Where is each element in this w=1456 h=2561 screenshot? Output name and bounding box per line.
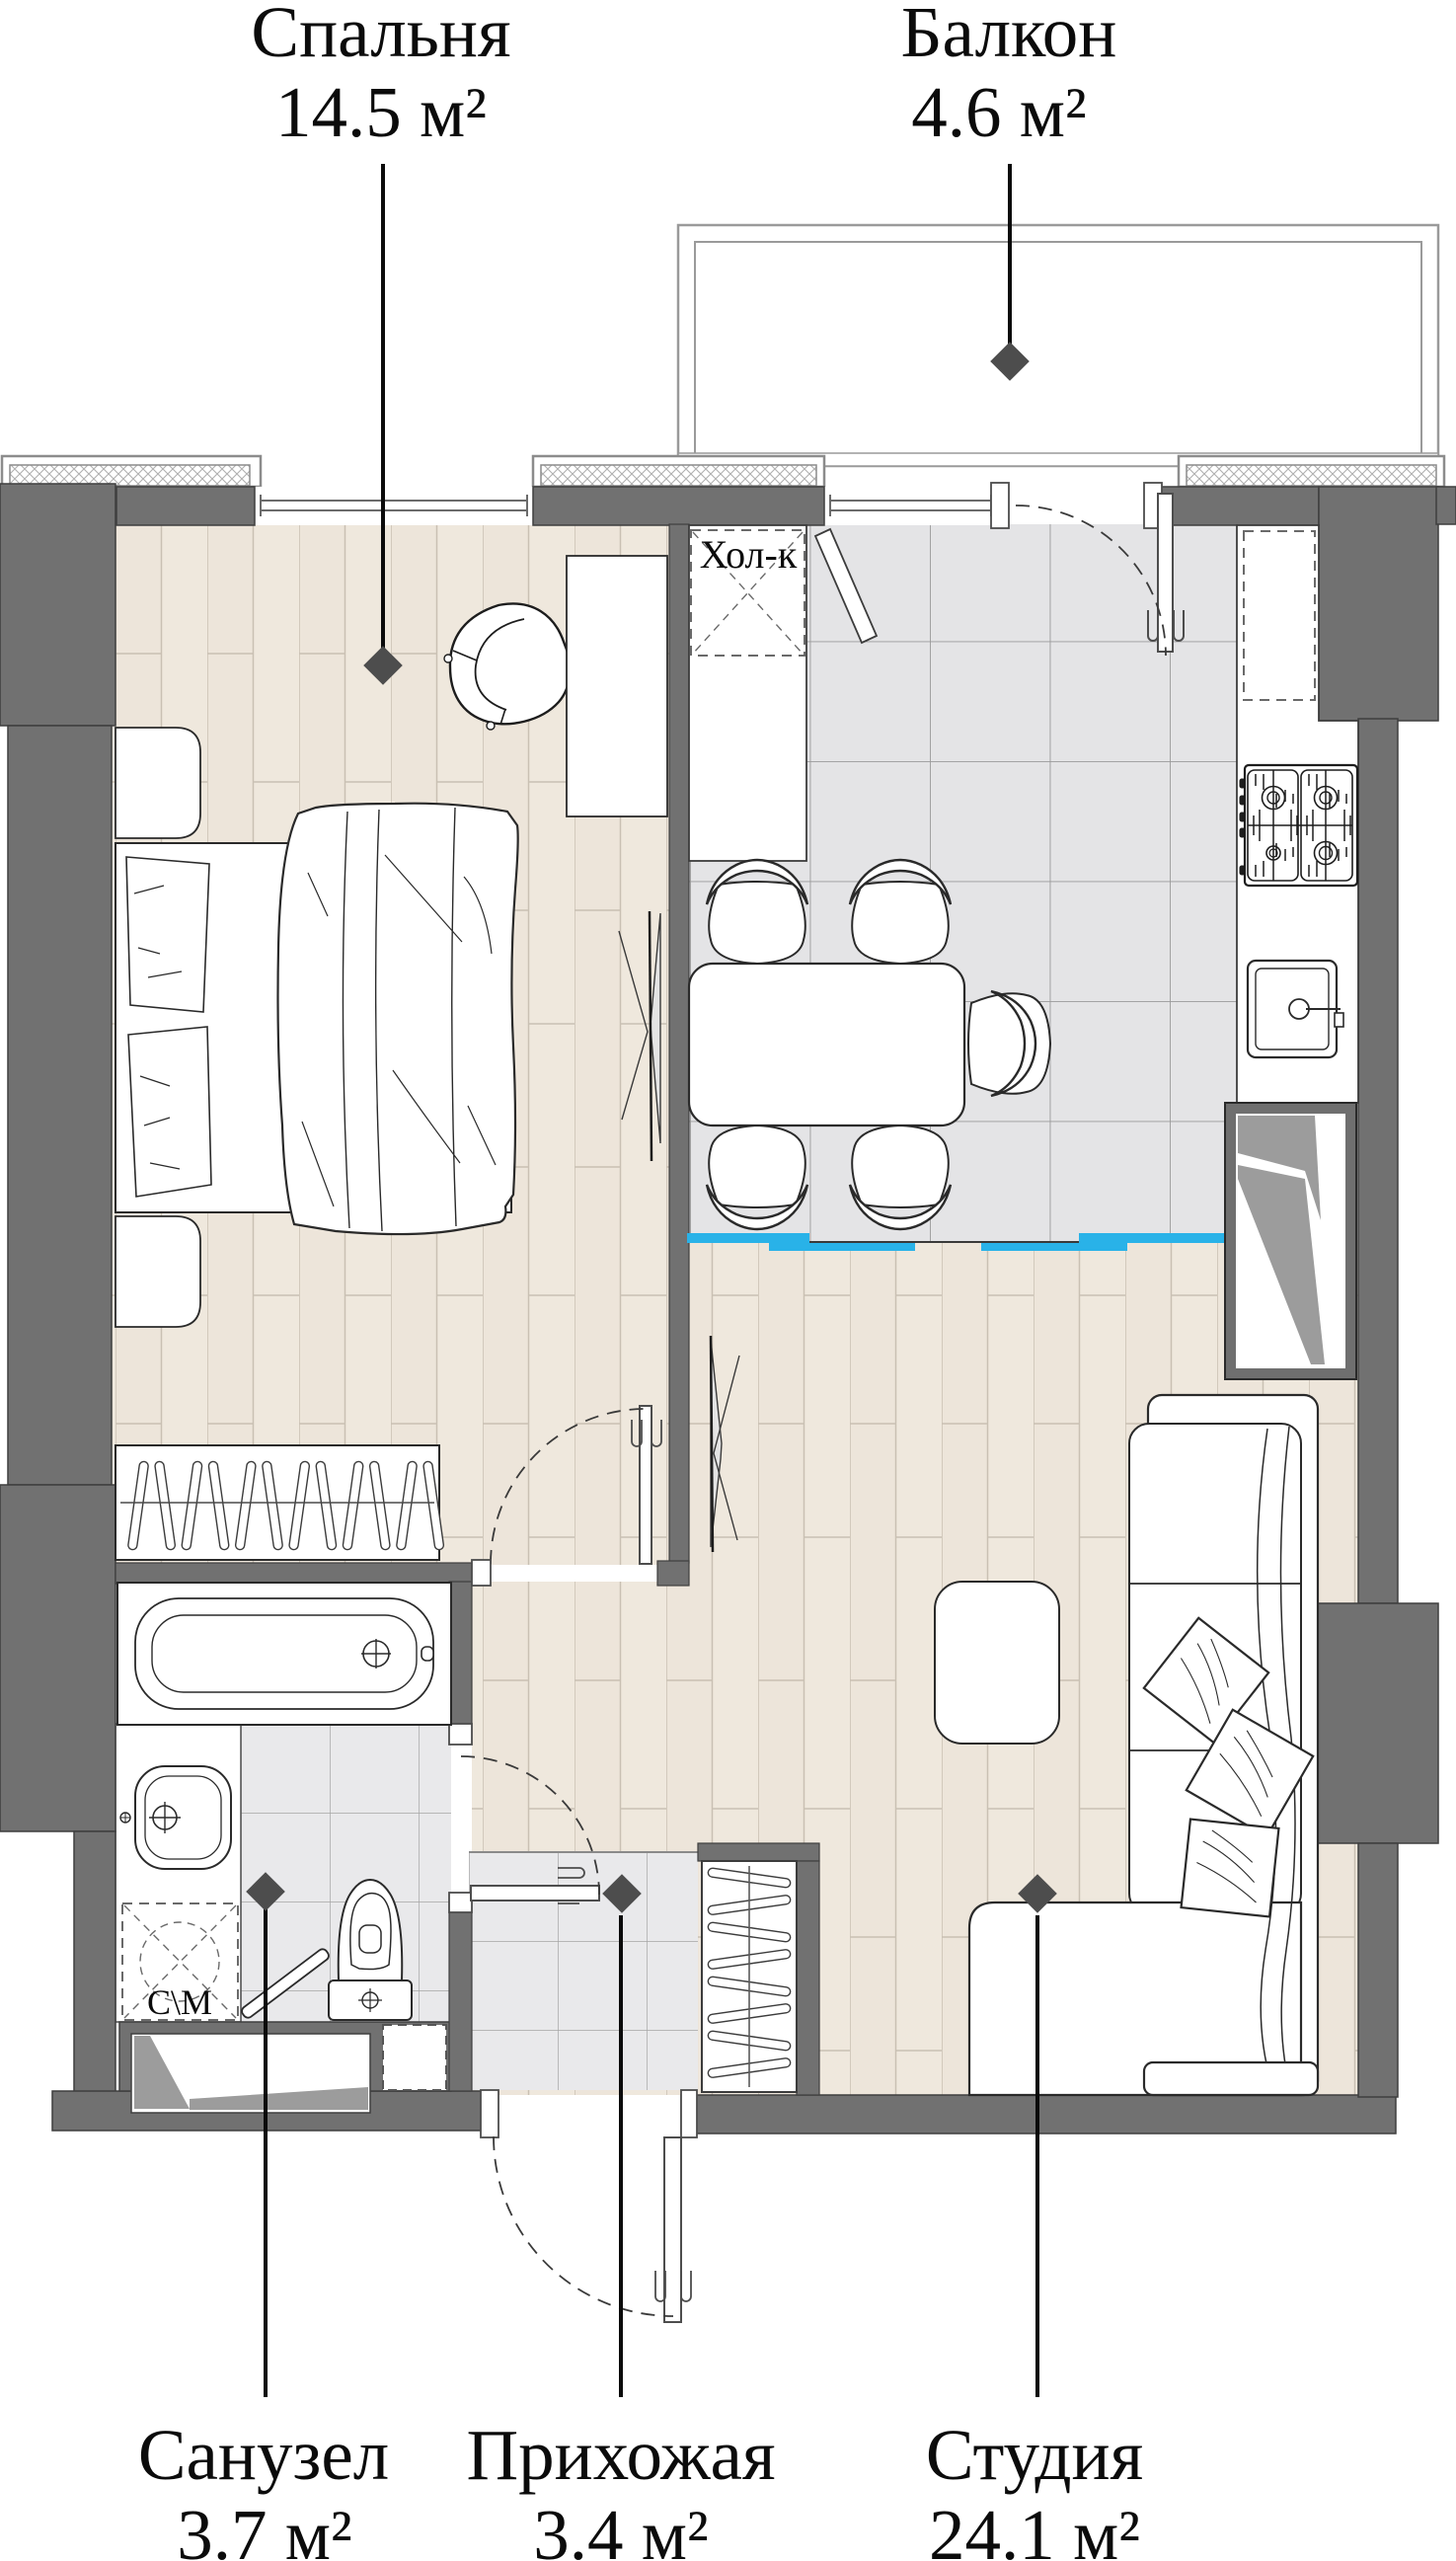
- svg-text:С\М: С\М: [147, 1982, 212, 2022]
- svg-text:Спальня: Спальня: [251, 0, 510, 72]
- svg-text:Прихожая: Прихожая: [466, 2415, 775, 2495]
- svg-text:4.6 м²: 4.6 м²: [911, 72, 1087, 152]
- svg-text:24.1 м²: 24.1 м²: [929, 2495, 1140, 2561]
- svg-text:Балкон: Балкон: [901, 0, 1117, 72]
- svg-text:3.7 м²: 3.7 м²: [177, 2495, 352, 2561]
- svg-text:Студия: Студия: [926, 2415, 1143, 2495]
- svg-text:Хол-к: Хол-к: [700, 532, 798, 577]
- svg-text:14.5 м²: 14.5 м²: [275, 72, 487, 152]
- svg-text:Санузел: Санузел: [138, 2415, 389, 2495]
- svg-text:3.4 м²: 3.4 м²: [533, 2495, 709, 2561]
